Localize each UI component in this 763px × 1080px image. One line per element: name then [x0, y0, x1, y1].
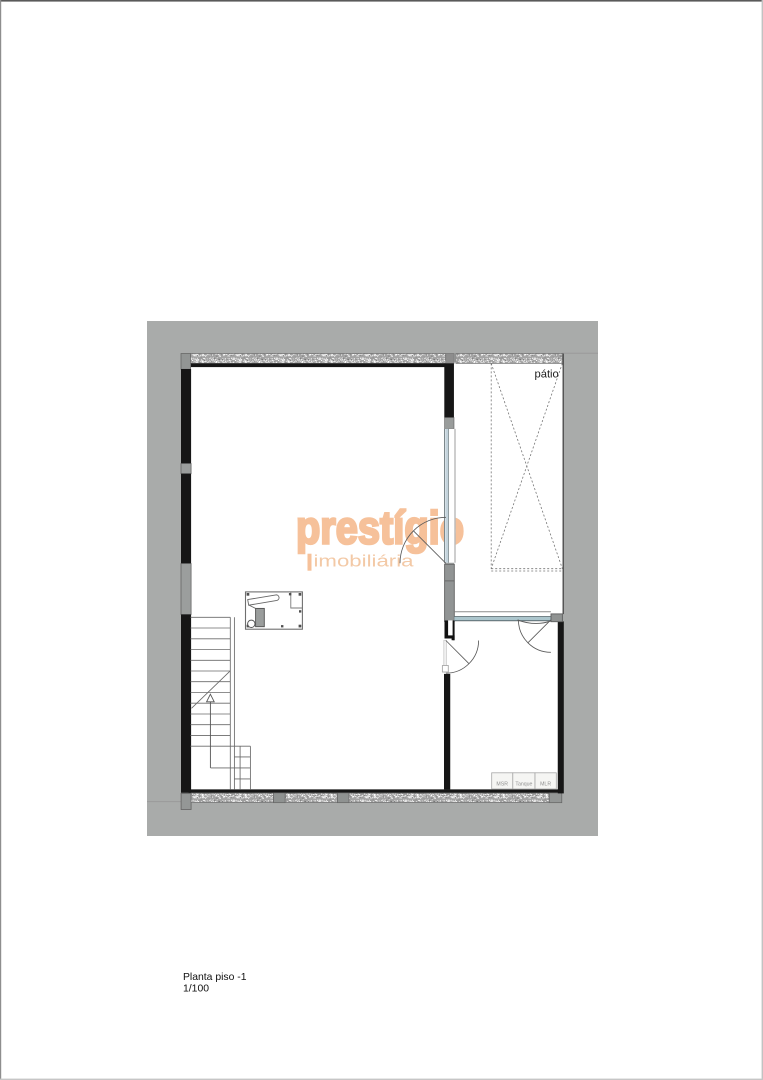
svg-text:1/100: 1/100 [183, 984, 209, 995]
svg-text:MSR: MSR [496, 781, 508, 787]
svg-text:prestígio: prestígio [296, 502, 464, 554]
svg-text:Tanque: Tanque [515, 781, 532, 787]
svg-text:Planta piso -1: Planta piso -1 [183, 972, 247, 983]
svg-text:pátio: pátio [535, 369, 559, 381]
svg-text:imobiliária: imobiliária [314, 553, 415, 571]
svg-text:MLR: MLR [540, 781, 551, 787]
